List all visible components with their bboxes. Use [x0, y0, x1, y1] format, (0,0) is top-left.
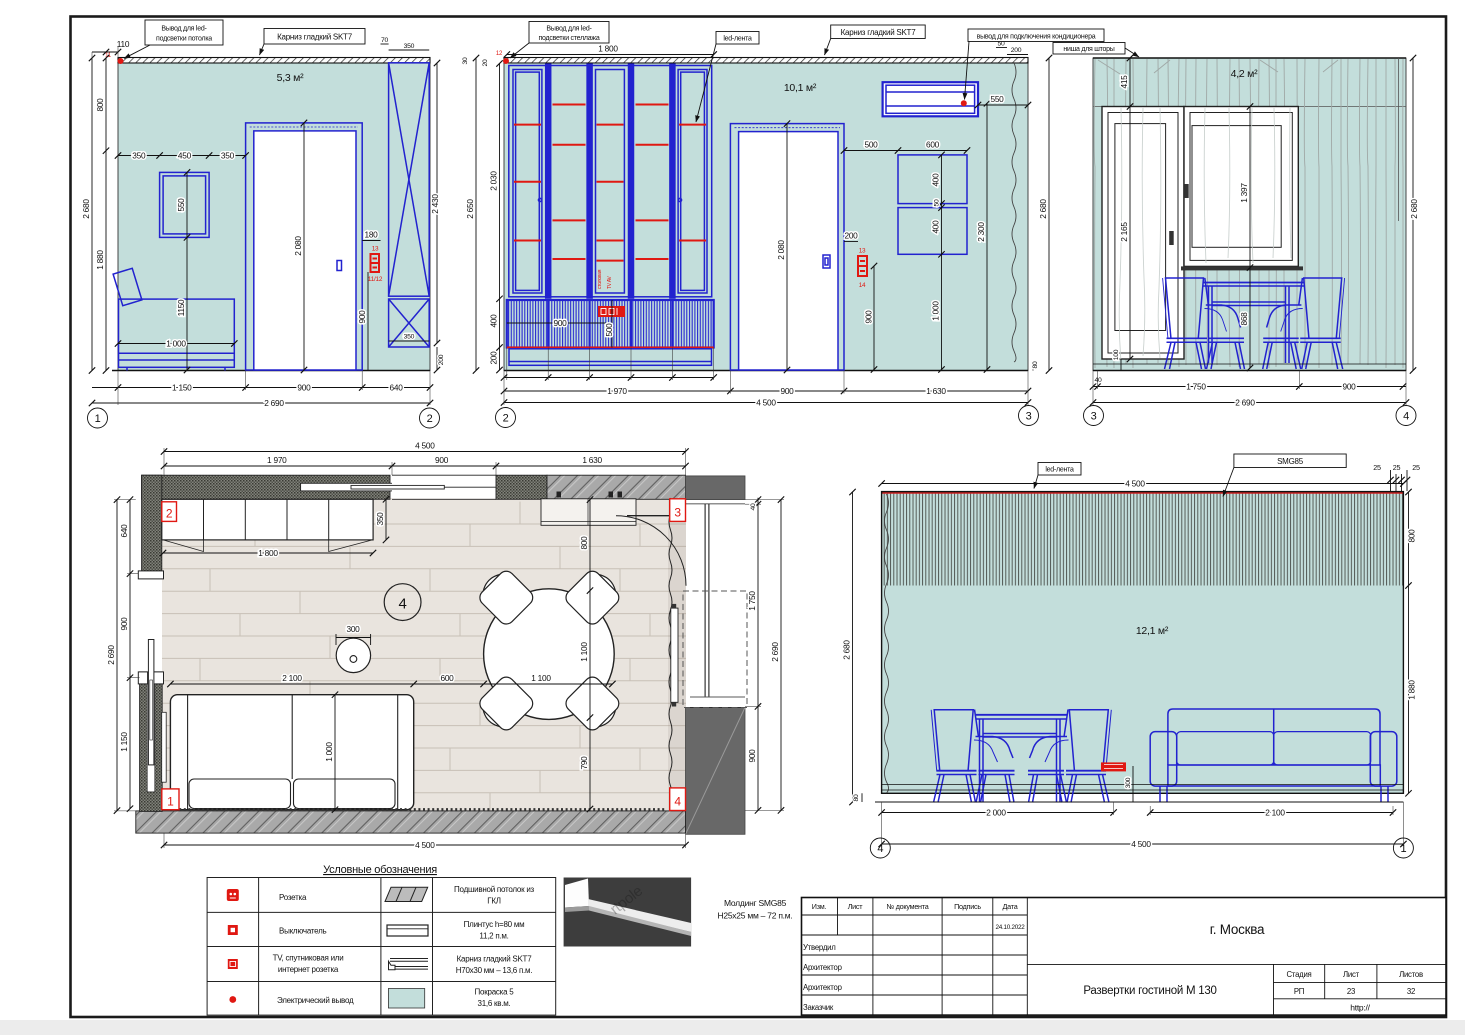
- svg-text:350: 350: [375, 512, 385, 526]
- svg-text:640: 640: [119, 524, 129, 538]
- svg-text:350: 350: [404, 334, 415, 341]
- svg-text:2 690: 2 690: [264, 398, 284, 408]
- svg-text:1 100: 1 100: [579, 642, 589, 662]
- svg-text:Н70х30 мм – 13,6 п.м.: Н70х30 мм – 13,6 п.м.: [456, 966, 533, 975]
- svg-text:400: 400: [931, 173, 941, 187]
- svg-text:ниша для шторы: ниша для шторы: [1063, 46, 1114, 53]
- svg-text:Изм.: Изм.: [812, 902, 827, 911]
- svg-text:1: 1: [95, 413, 101, 425]
- svg-text:№ документа: № документа: [886, 902, 928, 911]
- svg-text:900: 900: [297, 383, 311, 393]
- svg-text:Розетка: Розетка: [279, 893, 307, 902]
- svg-text:Карниз гладкий SKT7: Карниз гладкий SKT7: [457, 955, 533, 964]
- svg-text:1 100: 1 100: [531, 673, 551, 683]
- svg-text:Лист: Лист: [848, 902, 864, 911]
- svg-text:400: 400: [931, 220, 941, 234]
- svg-text:1 970: 1 970: [267, 455, 287, 465]
- svg-text:10,1 м²: 10,1 м²: [784, 82, 817, 94]
- svg-text:4,2 м²: 4,2 м²: [1231, 68, 1258, 80]
- svg-text:Листов: Листов: [1399, 970, 1423, 979]
- svg-text:24.10.2022: 24.10.2022: [995, 924, 1025, 931]
- svg-text:868: 868: [1239, 312, 1249, 326]
- svg-text:25: 25: [1393, 463, 1401, 472]
- svg-text:180: 180: [364, 230, 378, 240]
- svg-text:Утвердил: Утвердил: [803, 943, 836, 952]
- svg-text:40: 40: [750, 503, 757, 511]
- svg-text:400: 400: [489, 314, 499, 328]
- svg-text:4: 4: [399, 596, 407, 613]
- svg-text:2 165: 2 165: [1119, 222, 1129, 242]
- svg-text:200: 200: [1011, 47, 1022, 54]
- svg-text:2: 2: [166, 507, 173, 521]
- svg-text:2 680: 2 680: [81, 199, 91, 219]
- svg-text:2 690: 2 690: [106, 645, 116, 665]
- svg-text:1: 1: [1400, 843, 1406, 855]
- svg-text:1: 1: [167, 795, 174, 809]
- svg-text:2 080: 2 080: [293, 236, 303, 256]
- svg-text:Архитектор: Архитектор: [803, 983, 843, 992]
- svg-text:1 800: 1 800: [258, 548, 278, 558]
- svg-text:TV, спутниковая или: TV, спутниковая или: [273, 954, 344, 963]
- svg-text:ГКЛ: ГКЛ: [487, 897, 501, 906]
- svg-text:900: 900: [435, 455, 449, 465]
- svg-text:900: 900: [553, 318, 567, 328]
- svg-text:2 080: 2 080: [776, 240, 786, 260]
- svg-text:Подпись: Подпись: [954, 902, 981, 911]
- svg-text:1 000: 1 000: [324, 742, 334, 762]
- svg-text:РП: РП: [1294, 987, 1304, 996]
- svg-text:2: 2: [503, 413, 509, 425]
- svg-text:1150: 1150: [176, 299, 186, 316]
- svg-text:23: 23: [1347, 987, 1355, 996]
- svg-text:Лист: Лист: [1343, 970, 1360, 979]
- svg-text:70: 70: [381, 37, 389, 44]
- svg-text:80: 80: [1032, 361, 1039, 369]
- svg-text:Условные обозначения: Условные обозначения: [323, 864, 437, 876]
- svg-text:790: 790: [579, 756, 589, 770]
- svg-text:Дата: Дата: [1003, 902, 1018, 911]
- svg-text:Вывод для led-: Вывод для led-: [546, 26, 592, 33]
- svg-text:интернет розетка: интернет розетка: [278, 965, 339, 974]
- svg-text:32: 32: [1407, 987, 1415, 996]
- svg-text:2 000: 2 000: [986, 808, 1006, 818]
- svg-text:3: 3: [1026, 411, 1032, 423]
- svg-text:200: 200: [489, 351, 499, 365]
- svg-text:3: 3: [674, 506, 681, 520]
- svg-text:12,1 м²: 12,1 м²: [1136, 625, 1169, 637]
- svg-text:1 970: 1 970: [607, 386, 627, 396]
- svg-text:110: 110: [117, 39, 130, 49]
- svg-text:800: 800: [1407, 529, 1417, 543]
- svg-text:Стадия: Стадия: [1286, 970, 1311, 979]
- svg-text:900: 900: [357, 310, 367, 324]
- svg-text:900: 900: [780, 386, 794, 396]
- svg-text:500: 500: [604, 323, 614, 337]
- svg-text:4 500: 4 500: [415, 441, 435, 451]
- svg-text:1 150: 1 150: [119, 732, 129, 752]
- svg-text:Карниз гладкий SKT7: Карниз гладкий SKT7: [277, 33, 353, 42]
- svg-text:Электрический вывод: Электрический вывод: [277, 996, 354, 1005]
- svg-text:подсветки потолка: подсветки потолка: [156, 36, 212, 43]
- svg-text:4: 4: [1403, 411, 1409, 423]
- svg-text:led-лента: led-лента: [1045, 467, 1074, 474]
- svg-text:Выключатель: Выключатель: [279, 927, 327, 936]
- svg-text:11,2 п.м.: 11,2 п.м.: [479, 932, 508, 941]
- svg-text:2 030: 2 030: [489, 171, 499, 191]
- svg-text:450: 450: [178, 151, 192, 161]
- svg-text:40: 40: [1094, 377, 1102, 384]
- svg-text:1 800: 1 800: [598, 44, 618, 54]
- svg-text:2 680: 2 680: [1038, 199, 1048, 219]
- svg-text:100: 100: [1113, 349, 1120, 360]
- svg-text:4 500: 4 500: [1125, 479, 1145, 489]
- svg-text:1 750: 1 750: [1186, 382, 1206, 392]
- svg-text:200: 200: [844, 231, 858, 241]
- svg-text:350: 350: [221, 151, 235, 161]
- svg-text:Архитектор: Архитектор: [803, 963, 843, 972]
- svg-text:2 650: 2 650: [465, 199, 475, 219]
- svg-text:2 680: 2 680: [842, 640, 852, 660]
- svg-text:300: 300: [346, 624, 360, 634]
- svg-text:300: 300: [1125, 777, 1132, 788]
- svg-text:50: 50: [934, 199, 941, 207]
- svg-text:800: 800: [579, 536, 589, 550]
- svg-text:900: 900: [1342, 382, 1356, 392]
- svg-text:1 397: 1 397: [1239, 183, 1249, 203]
- svg-text:900: 900: [747, 749, 757, 763]
- svg-text:550: 550: [176, 198, 186, 212]
- svg-text:14: 14: [859, 282, 866, 289]
- svg-text:SMG85: SMG85: [1277, 457, 1304, 466]
- svg-text:2 300: 2 300: [976, 222, 986, 242]
- svg-text:13: 13: [859, 248, 866, 255]
- svg-text:4: 4: [674, 795, 681, 809]
- svg-text:2: 2: [427, 413, 433, 425]
- svg-text:1 000: 1 000: [931, 301, 941, 321]
- svg-text:350: 350: [132, 151, 146, 161]
- svg-text:13: 13: [372, 246, 379, 253]
- svg-text:640: 640: [390, 383, 404, 393]
- svg-text:подсветки стеллажа: подсветки стеллажа: [539, 35, 600, 42]
- svg-text:900: 900: [863, 310, 873, 324]
- svg-text:2 690: 2 690: [1235, 398, 1255, 408]
- svg-text:12: 12: [496, 51, 503, 57]
- svg-text:80: 80: [853, 794, 860, 802]
- svg-text:20: 20: [482, 59, 489, 67]
- svg-text:5,3 м²: 5,3 м²: [277, 72, 304, 84]
- svg-text:900: 900: [119, 617, 129, 631]
- svg-text:30: 30: [462, 57, 469, 65]
- svg-text:31,6 кв.м.: 31,6 кв.м.: [478, 999, 511, 1008]
- svg-text:столовая: столовая: [597, 269, 603, 289]
- svg-text:11/12: 11/12: [368, 276, 383, 283]
- svg-text:1 000: 1 000: [166, 339, 186, 349]
- svg-text:4 500: 4 500: [1131, 839, 1151, 849]
- svg-text:4: 4: [877, 843, 883, 855]
- svg-text:Развертки гостиной М 130: Развертки гостиной М 130: [1083, 985, 1216, 997]
- svg-text:4 500: 4 500: [756, 398, 776, 408]
- svg-text:1 750: 1 750: [747, 591, 757, 611]
- svg-text:http://: http://: [1350, 1003, 1370, 1013]
- svg-text:вывод для подключения кондицио: вывод для подключения кондиционера: [977, 34, 1096, 41]
- svg-text:2 680: 2 680: [1409, 199, 1419, 219]
- svg-text:Заказчик: Заказчик: [803, 1003, 834, 1012]
- svg-text:2 430: 2 430: [430, 194, 440, 214]
- svg-text:25: 25: [1412, 463, 1420, 472]
- svg-text:415: 415: [1119, 75, 1129, 89]
- svg-text:350: 350: [404, 43, 415, 50]
- svg-text:550: 550: [990, 94, 1004, 104]
- svg-text:1 150: 1 150: [172, 383, 192, 393]
- svg-text:500: 500: [864, 140, 878, 150]
- svg-text:600: 600: [926, 140, 940, 150]
- svg-text:4 500: 4 500: [415, 840, 435, 850]
- svg-text:г. Москва: г. Москва: [1210, 922, 1265, 937]
- svg-text:Вывод для led-: Вывод для led-: [161, 26, 207, 33]
- svg-text:Н25х25 мм – 72 п.м.: Н25х25 мм – 72 п.м.: [717, 911, 792, 921]
- svg-text:1 880: 1 880: [1407, 680, 1417, 700]
- svg-text:1 880: 1 880: [95, 250, 105, 270]
- svg-text:800: 800: [95, 98, 105, 112]
- svg-text:Подшивной потолок из: Подшивной потолок из: [454, 885, 534, 894]
- svg-text:Карниз гладкий SKT7: Карниз гладкий SKT7: [841, 28, 917, 37]
- svg-text:3: 3: [1091, 411, 1097, 423]
- svg-text:2 690: 2 690: [770, 642, 780, 662]
- svg-text:25: 25: [1373, 463, 1381, 472]
- svg-text:2 100: 2 100: [1265, 808, 1285, 818]
- svg-text:ТV AV: ТV AV: [607, 276, 613, 289]
- svg-text:200: 200: [438, 354, 445, 365]
- svg-text:Плинтус h=80 мм: Плинтус h=80 мм: [464, 920, 525, 929]
- svg-text:Молдинг SMG85: Молдинг SMG85: [724, 898, 787, 908]
- svg-text:2 100: 2 100: [282, 673, 302, 683]
- svg-text:1 630: 1 630: [582, 455, 602, 465]
- svg-text:1 630: 1 630: [926, 386, 946, 396]
- svg-text:Покраска 5: Покраска 5: [475, 988, 515, 997]
- svg-text:led-лента: led-лента: [723, 36, 752, 43]
- svg-text:600: 600: [440, 673, 454, 683]
